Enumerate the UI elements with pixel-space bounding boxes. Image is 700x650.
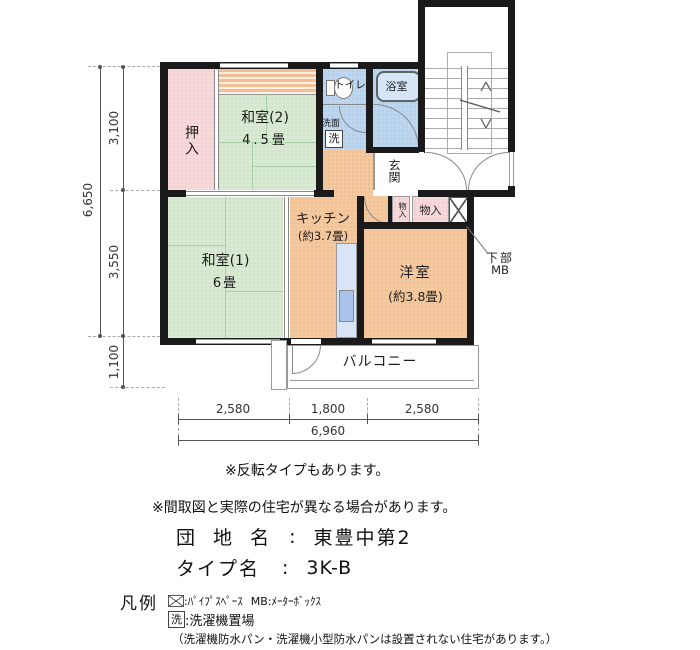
separator-colon: : xyxy=(282,557,288,579)
storage-small-label: 物入 xyxy=(394,197,408,223)
wall-western-north xyxy=(358,222,467,229)
kitchen-size: (約3.7畳) xyxy=(276,228,370,244)
pipe-space-icon xyxy=(449,197,468,224)
dim-dot xyxy=(121,188,125,192)
legend-line-washer: 洗 :洗濯機置場 xyxy=(168,610,254,629)
wall-bath-west xyxy=(366,69,373,153)
balcony-rail-line xyxy=(290,380,474,381)
balcony-partition xyxy=(271,340,287,390)
legend-title: 凡例 xyxy=(120,589,158,614)
dim-v-balcony: 1,100 xyxy=(107,334,121,390)
wall-stair-left xyxy=(418,0,425,152)
dim-h-total: 6,960 xyxy=(288,424,368,438)
bath-label: 浴室 xyxy=(376,78,417,94)
room-western-fill xyxy=(364,229,467,338)
estate-value: 東豊中第2 xyxy=(314,523,412,550)
senmen-label: 洗面 xyxy=(319,116,343,129)
washitsu2-board-strip xyxy=(214,69,316,95)
stair-window xyxy=(509,152,514,186)
note-differ: ※間取図と実際の住宅が異なる場合があります。 xyxy=(152,497,456,517)
washitsu2-label: 和室(2) xyxy=(214,107,316,127)
dim-tick xyxy=(478,414,479,424)
entrance-door-arc-right xyxy=(468,152,509,190)
wall-mid-left xyxy=(160,190,186,197)
dim-tick xyxy=(178,414,179,424)
tatami-line xyxy=(252,166,316,167)
washitsu2-size: 4.5畳 xyxy=(214,129,316,148)
dim-dot xyxy=(121,65,125,69)
dim-dot xyxy=(121,334,125,338)
type-name-row: タイプ名 : 3K-B xyxy=(176,554,352,581)
dim-line-v-total xyxy=(100,67,101,337)
note-flip: ※反転タイプもあります。 xyxy=(225,460,389,480)
mb-note-line2: MB xyxy=(482,263,518,277)
separator-colon: : xyxy=(289,526,295,548)
kitchen-label: キッチン xyxy=(283,207,363,227)
western-label: 洋室 xyxy=(364,262,467,282)
legend-mb-text: MB:ﾒｰﾀｰﾎﾞｯｸｽ xyxy=(251,593,321,609)
toilet-label: トイレ xyxy=(334,77,366,92)
dim-extension xyxy=(110,190,160,191)
dim-line-h-total xyxy=(178,440,479,441)
window xyxy=(220,63,288,68)
floorplan-canvas: 洗 押入 和室(2) 4.5畳 xyxy=(0,0,700,650)
pipe-space-legend-icon xyxy=(168,595,184,607)
fusuma-washitsu1-2 xyxy=(186,191,314,196)
dim-h-center: 1,800 xyxy=(288,402,368,416)
dim-dot xyxy=(121,385,125,389)
oshiire-label: 押入 xyxy=(181,111,201,171)
washer-legend-icon: 洗 xyxy=(168,611,185,628)
dim-v-top: 3,100 xyxy=(107,100,121,156)
genkan-label: 玄関 xyxy=(387,152,403,190)
toilet-senmen-divider xyxy=(323,104,366,105)
genkan-door-opening xyxy=(419,152,424,188)
window xyxy=(196,339,280,344)
window xyxy=(330,63,358,68)
dim-h-left: 2,580 xyxy=(193,402,273,416)
wall-storage-divider xyxy=(388,196,392,223)
wall-washitsu2-east xyxy=(316,62,323,197)
wall-top xyxy=(160,62,425,69)
dim-h-right: 2,580 xyxy=(382,402,462,416)
washer-place-icon: 洗 xyxy=(325,130,343,148)
dim-line-v-segments xyxy=(123,67,124,388)
tatami-line xyxy=(225,291,283,292)
estate-name-row: 団 地 名 : 東豊中第2 xyxy=(176,523,412,550)
dim-line-h-segments xyxy=(178,419,479,420)
legend-line-ps-mb: :ﾊﾟｲﾌﾟｽﾍﾟｰｽ MB:ﾒｰﾀｰﾎﾞｯｸｽ xyxy=(168,593,321,609)
legend-ps-text: :ﾊﾟｲﾌﾟｽﾍﾟｰｽ xyxy=(184,593,243,609)
estate-label: 団 地 名 xyxy=(176,523,275,550)
legend-caution: （洗濯機防水パン・洗濯機小型防水パンは設置されない住宅があります。） xyxy=(172,631,557,647)
tatami-line xyxy=(168,245,225,246)
dim-dot xyxy=(98,65,102,69)
kitchen-sink-icon xyxy=(339,290,354,322)
storage-large-label: 物入 xyxy=(412,202,449,218)
type-label: タイプ名 xyxy=(176,554,260,581)
dim-dot xyxy=(98,334,102,338)
balcony-label: バルコニー xyxy=(330,351,430,371)
legend-washer-text: :洗濯機置場 xyxy=(185,610,254,629)
wall-stair-right xyxy=(508,0,515,152)
type-value: 3K-B xyxy=(306,557,352,579)
washitsu1-size: 6畳 xyxy=(168,272,283,291)
entrance-door-arc-left xyxy=(426,152,467,190)
balcony-door-opening xyxy=(291,339,321,344)
wall-stair-top xyxy=(418,0,515,7)
wall-western-east xyxy=(467,196,474,345)
dim-v-total: 6,650 xyxy=(81,170,95,230)
dim-v-mid: 3,550 xyxy=(107,234,121,290)
dim-tick xyxy=(178,435,179,445)
dim-tick xyxy=(478,435,479,445)
wall-left xyxy=(160,62,168,345)
western-size: (約3.8畳) xyxy=(358,286,473,305)
washitsu1-label: 和室(1) xyxy=(168,250,283,270)
stairs-direction-arrow-icon xyxy=(452,80,508,130)
window xyxy=(372,339,436,344)
